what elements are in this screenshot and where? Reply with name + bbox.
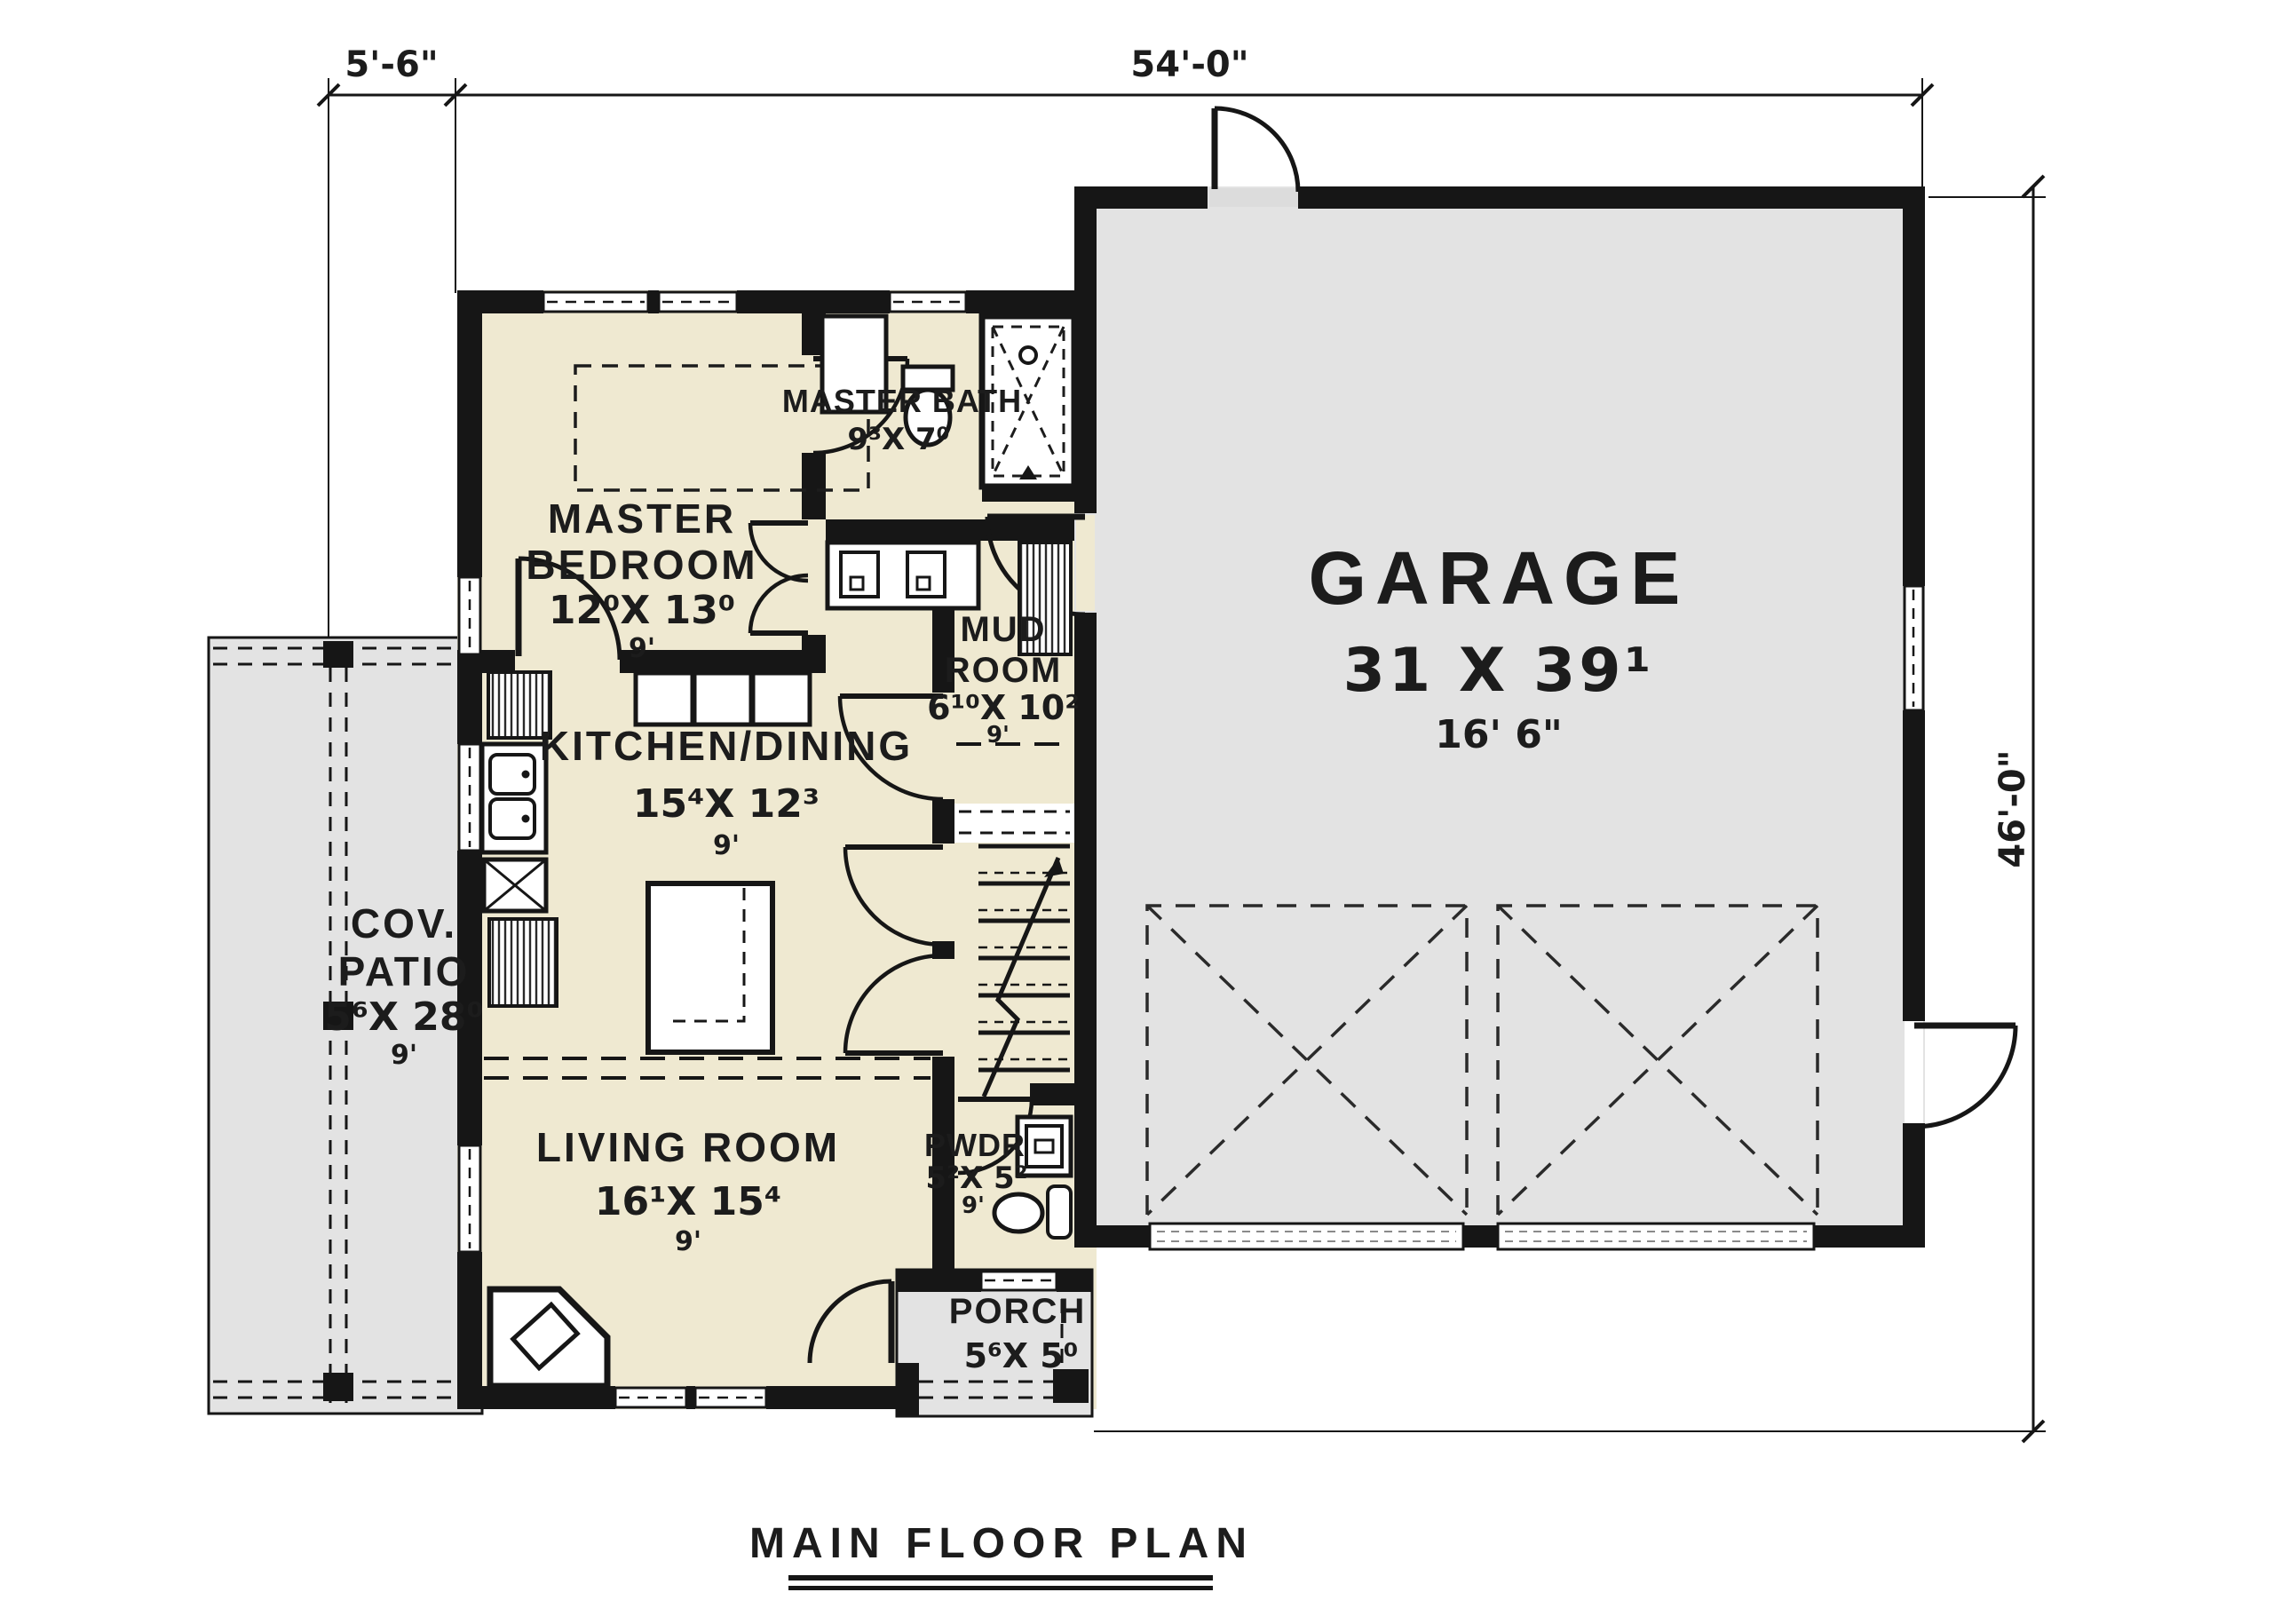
- garage-ceiling: 16' 6": [1435, 712, 1563, 757]
- floor-plan-drawing: 5'-6" 54'-0" 46'-0" GARAGE 31 X 39¹ 16' …: [0, 0, 2273, 1624]
- pwdr-toilet-tank: [1048, 1186, 1071, 1238]
- kitchen-sink: [482, 744, 546, 852]
- living-room-size: 16¹X 15⁴: [595, 1179, 781, 1224]
- living-room-ceiling: 9': [675, 1226, 701, 1257]
- pwdr-name: PWDR: [924, 1127, 1026, 1163]
- mudroom-door-opening: [1076, 515, 1095, 611]
- master-bath-name: MASTER BATH: [782, 383, 1022, 419]
- garage-name: GARAGE: [1309, 536, 1690, 620]
- garage-top-door-opening: [1209, 188, 1298, 207]
- mud-room-name2: ROOM: [945, 651, 1062, 690]
- garage-size: 31 X 39¹: [1343, 636, 1655, 706]
- cov-patio-size: 5⁶X 28⁰: [324, 994, 484, 1040]
- kitchen-island: [648, 883, 772, 1052]
- master-bedroom-ceiling: 9': [629, 633, 655, 664]
- title-rule-1: [788, 1575, 1213, 1580]
- master-bath-size: 9³X 7⁰: [847, 422, 949, 457]
- garage-side-door: [1914, 1026, 2016, 1127]
- porch-size: 5⁶X 5⁰: [964, 1336, 1079, 1375]
- bedroom-window-1: [543, 292, 648, 312]
- cov-patio-name1: COV.: [351, 900, 457, 947]
- shower-drain: [1020, 347, 1036, 363]
- master-bedroom-size: 12⁰X 13⁰: [549, 588, 735, 633]
- range: [489, 919, 557, 1006]
- dining-buffet-cabinets: [636, 673, 810, 725]
- pwdr-size: 5²X 5²: [925, 1161, 1027, 1196]
- dim-overall-height: 46'-0": [1992, 749, 2033, 867]
- porch-name: PORCH: [949, 1292, 1086, 1331]
- dishwasher: [484, 860, 546, 911]
- pwdr-ceiling: 9': [962, 1192, 985, 1219]
- kitchen-dining-ceiling: 9': [713, 830, 740, 861]
- floor-plan-page: 5'-6" 54'-0" 46'-0" GARAGE 31 X 39¹ 16' …: [0, 0, 2273, 1624]
- mud-room-name1: MUD: [960, 610, 1046, 649]
- pwdr-toilet-bowl: [994, 1194, 1042, 1232]
- living-room-name: LIVING ROOM: [536, 1124, 840, 1170]
- dim-left-offset: 5'-6": [345, 44, 438, 85]
- master-bedroom-name1: MASTER: [548, 495, 736, 542]
- kitchen-west-window: [459, 744, 480, 851]
- garage-side-door-opening: [1905, 1021, 1923, 1123]
- cov-patio-name2: PATIO: [338, 948, 471, 994]
- stair-landing: [954, 804, 1074, 843]
- plan-title-text: MAIN FLOOR PLAN: [749, 1520, 1254, 1567]
- garage-rear-door: [1215, 108, 1298, 192]
- mud-room-ceiling: 9': [986, 722, 1010, 749]
- double-vanity: [828, 543, 978, 608]
- living-west-window: [459, 1145, 480, 1252]
- kitchen-dining-name: KITCHEN/DINING: [540, 723, 913, 769]
- plan-title: MAIN FLOOR PLAN: [749, 1520, 1254, 1590]
- cov-patio-ceiling: 9': [391, 1040, 417, 1071]
- title-rule-2: [788, 1586, 1213, 1590]
- master-bedroom-name2: BEDROOM: [526, 542, 757, 588]
- kitchen-dining-size: 15⁴X 12³: [633, 781, 820, 827]
- dim-overall-width: 54'-0": [1130, 44, 1248, 85]
